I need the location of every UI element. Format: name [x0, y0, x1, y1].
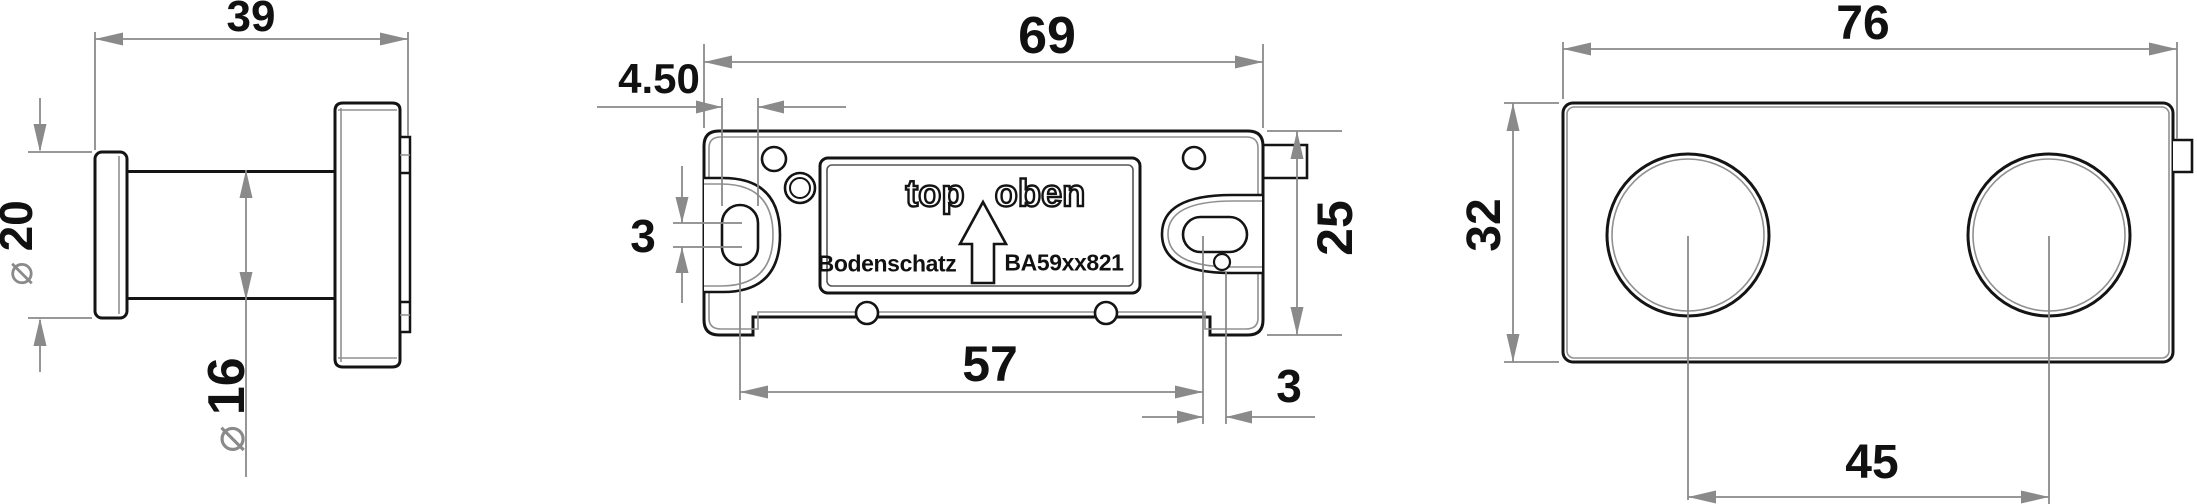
- model-label: BA59xx821: [1004, 252, 1123, 275]
- back-slot-travel-dim-label: 3: [630, 213, 656, 259]
- front-height-dim-label: 32: [1461, 198, 1509, 251]
- back-slot-spacing-dim-label: 57: [962, 339, 1018, 389]
- back-hole-bottom-left: [856, 302, 878, 324]
- side-shaft: [127, 172, 335, 299]
- back-height-dim-label: 25: [1310, 200, 1360, 256]
- diameter-symbol: ⌀: [203, 425, 254, 453]
- front-width-dim-label: 76: [1836, 0, 1889, 48]
- side-mount-plate: [335, 103, 400, 367]
- back-width-dim-label: 69: [1018, 10, 1076, 62]
- brand-label: Bodenschatz: [818, 253, 957, 276]
- front-view-part: [1563, 103, 2192, 362]
- back-pin-hole-inner: [790, 178, 810, 198]
- back-left-slot: [722, 205, 758, 265]
- side-knob-diameter-label: ⌀20: [0, 200, 39, 286]
- back-hole-offset-dim-label: 3: [1276, 363, 1302, 409]
- diameter-symbol: ⌀: [0, 261, 41, 285]
- label-oben: oben: [995, 175, 1086, 213]
- side-width-dim-label: 39: [227, 0, 276, 39]
- label-top: top: [905, 175, 964, 213]
- side-view-part: [95, 103, 410, 367]
- technical-drawing-canvas: 39 ⌀20 ⌀16 69 4.50 3 25 57 3 76 32 45 to…: [0, 0, 2197, 504]
- back-right-slot: [1183, 217, 1247, 252]
- side-knob-disc: [95, 152, 127, 318]
- back-hole-top-right: [1183, 147, 1205, 169]
- front-side-tab: [2173, 140, 2192, 172]
- back-hole-bottom-right: [1095, 302, 1117, 324]
- front-center-distance-dim-label: 45: [1845, 439, 1898, 487]
- side-shaft-diameter-label: ⌀16: [201, 357, 253, 452]
- back-slot-width-dim-label: 4.50: [618, 58, 700, 100]
- back-hole-top-left: [762, 147, 786, 171]
- back-small-hole: [1214, 254, 1230, 270]
